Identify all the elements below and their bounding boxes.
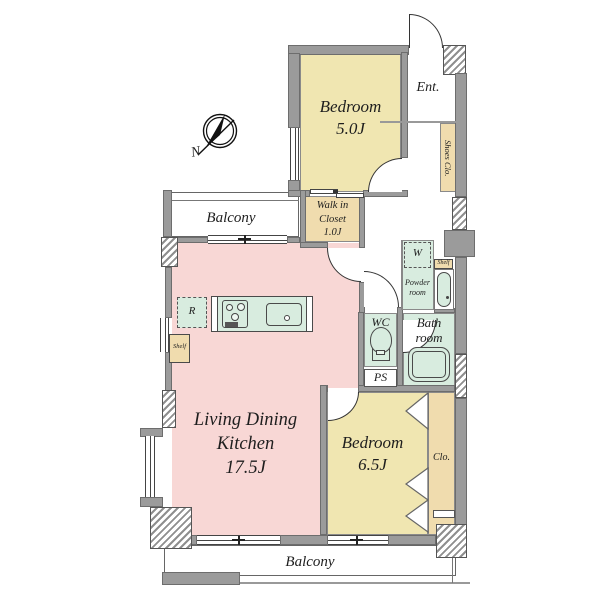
label-bedroom-bottom: Bedroom 6.5J — [322, 432, 423, 476]
balcony-top-railing — [164, 200, 299, 201]
toilet-flush — [376, 350, 385, 355]
window-cross — [244, 235, 246, 244]
label-wc: WC — [364, 315, 397, 331]
label-wic-size: 1.0J — [305, 226, 360, 240]
label-ldk-line2: Kitchen — [158, 432, 333, 456]
wall-pillar — [444, 230, 475, 257]
label-bathroom-line2: room — [404, 331, 454, 346]
label-ldk-size: 17.5J — [158, 456, 333, 480]
balcony-bottom-step — [162, 572, 240, 585]
wall-bedroom-top-right — [401, 52, 408, 158]
label-ldk: Living Dining Kitchen 17.5J — [158, 408, 333, 480]
closet-slot — [433, 510, 455, 518]
stove-burner — [237, 303, 245, 311]
label-wic-line1: Walk in — [305, 199, 360, 213]
floor-plan: N Balcony Bedroom 5.0J Ent. Shoes Clo. W… — [0, 0, 600, 600]
wall-bottom-3 — [388, 535, 436, 545]
label-ldk-line1: Living Dining — [158, 408, 333, 432]
window-cross — [238, 536, 240, 545]
label-powder-line2: room — [401, 288, 434, 298]
label-balcony-top: Balcony — [171, 209, 291, 229]
wall-hatch-right-2 — [455, 354, 467, 398]
wall-bedroom-top-left-1 — [288, 53, 300, 128]
wall-right-upper — [455, 73, 467, 197]
label-pipe-space: PS — [364, 370, 397, 386]
label-refrigerator: R — [177, 304, 207, 318]
label-bedroom-bottom-name: Bedroom — [322, 432, 423, 454]
label-washer: W — [404, 246, 431, 260]
kitchen-counter-end-left — [211, 296, 218, 332]
wall-top — [288, 45, 409, 55]
balcony-right-edge — [452, 557, 453, 583]
wall-hatch-right-1 — [452, 197, 467, 230]
label-walk-in-closet: Walk in Closet 1.0J — [305, 199, 360, 240]
label-powder-line1: Powder — [401, 278, 434, 288]
label-bedroom-top: Bedroom 5.0J — [300, 96, 401, 140]
label-bedroom-bottom-size: 6.5J — [322, 454, 423, 476]
window-bay — [145, 436, 155, 497]
wall-hatch-bottom-right — [436, 524, 467, 558]
stove-grill — [225, 322, 238, 327]
label-closet: Clo. — [428, 451, 455, 464]
wall-bay-bottom — [140, 497, 163, 507]
stove-burner — [231, 313, 239, 321]
sink-drain — [284, 315, 290, 321]
wall-bottom-2 — [280, 535, 328, 545]
stove-burner — [226, 304, 233, 311]
label-entrance: Ent. — [402, 79, 454, 97]
label-bedroom-top-size: 5.0J — [300, 118, 401, 140]
wall-hatch-left-1 — [161, 237, 178, 267]
wall-powder-hall-line — [401, 240, 403, 310]
window-bedroom-top-left — [290, 128, 299, 180]
wall-bedroom-top-bottom-1 — [288, 190, 310, 197]
wall-hatch-left-3 — [150, 507, 192, 549]
label-wic-line2: Closet — [305, 213, 360, 227]
wall-hatch-entrance — [443, 45, 466, 75]
vanity-drain — [446, 296, 449, 299]
kitchen-sink — [266, 303, 302, 326]
bathtub — [408, 347, 450, 382]
label-bathroom-line1: Bath — [404, 316, 454, 331]
sliding-door-panel — [336, 193, 364, 198]
balcony-bottom-edge — [240, 582, 470, 584]
wall-ldk-top-2 — [287, 237, 300, 243]
label-bathroom: Bath room — [404, 316, 454, 346]
label-powder-shelf: Shelf — [434, 260, 453, 268]
wall-left-1 — [165, 267, 172, 318]
label-bedroom-top-name: Bedroom — [300, 96, 401, 118]
window-cross — [356, 536, 358, 545]
label-kitchen-shelf: Shelf — [168, 343, 191, 351]
door-wc — [364, 271, 399, 307]
door-entrance — [409, 14, 443, 48]
label-shoes-closet: Shoes Clo. — [440, 125, 456, 191]
vanity-basin — [437, 272, 451, 307]
sliding-door-tick — [333, 190, 338, 193]
wall-wic-bottom — [300, 242, 328, 248]
wall-right-lower — [455, 398, 467, 526]
label-balcony-bottom: Balcony — [230, 553, 390, 573]
kitchen-counter-end-right — [306, 296, 313, 332]
wall-right-mid — [455, 257, 467, 354]
label-powder-room: Powder room — [401, 278, 434, 299]
